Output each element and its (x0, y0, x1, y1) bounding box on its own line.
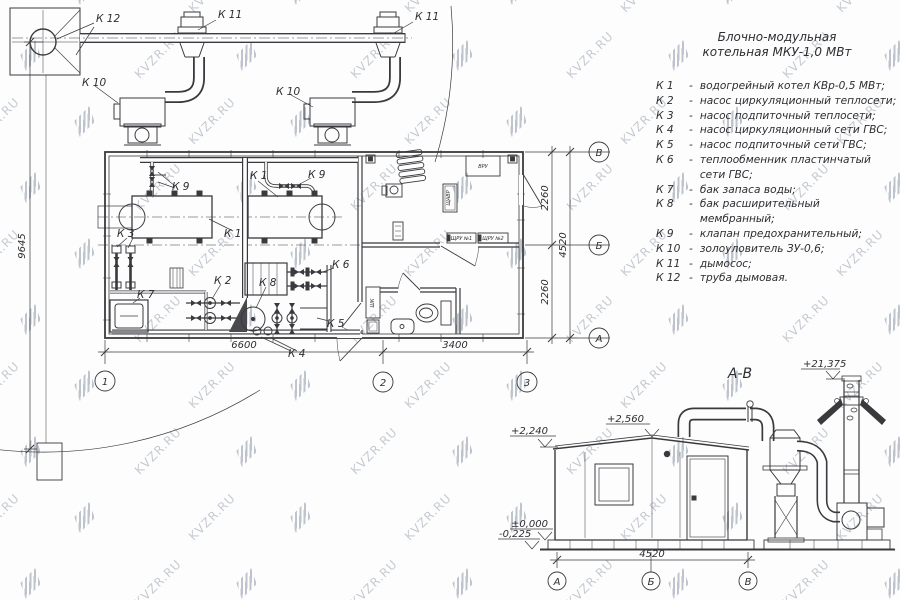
legend-item-separator: - (689, 257, 693, 272)
legend-item: К 1 - водогрейный котел КВр-0,5 МВт; (656, 79, 898, 94)
toilet (416, 301, 451, 325)
legend-item-key: К 7 (656, 183, 689, 198)
elevation-title: А-В (727, 366, 752, 382)
legend-item: К 3 - насос подпиточный теплосети; (656, 109, 898, 124)
legend-item-separator: - (689, 94, 693, 109)
elevation-view (498, 369, 895, 590)
legend-item: К 9 - клапан предохранительный; (656, 227, 898, 242)
drawing-title-line1: Блочно-модульная (656, 30, 898, 45)
sink (391, 319, 414, 334)
legend-item-key: К 6 (656, 153, 689, 183)
dim-9645: 9645 (17, 233, 28, 258)
legend-item-separator: - (689, 227, 693, 242)
axis-1: 1 (102, 377, 108, 388)
legend-item-description: насос подпиточный сети ГВС; (700, 138, 867, 153)
label-k12: К 12 (96, 13, 120, 25)
label-schru2: ЩРУ №2 (482, 236, 504, 242)
ash-collector-right (304, 98, 355, 145)
legend-item-separator: - (689, 138, 693, 153)
mark-0225: -0,225 (499, 529, 531, 540)
pumps-k2 (186, 298, 240, 324)
dim-6600: 6600 (231, 340, 256, 351)
legend-item-key: К 10 (656, 242, 689, 257)
label-shk: ШК (370, 298, 376, 307)
legend-item-description: бак расширительный мембранный; (700, 197, 898, 227)
label-k4: К 4 (288, 348, 305, 360)
mark-21375: +21,375 (803, 359, 846, 370)
axis-v-plan: В (596, 148, 603, 159)
legend-item: К 4 - насос циркуляционный сети ГВС; (656, 123, 898, 138)
axis-b-elevation: Б (648, 577, 655, 588)
window (595, 464, 633, 505)
mark-2240: +2,240 (511, 426, 548, 437)
legend-item-description: насос подпиточный теплосети; (700, 109, 876, 124)
tank-k8 (229, 297, 265, 332)
label-k11-right: К 11 (415, 11, 439, 23)
label-k6: К 6 (332, 259, 350, 271)
legend-item-description: бак запаса воды; (700, 183, 796, 198)
legend-item-key: К 11 (656, 257, 689, 272)
legend-item-description: теплообменник пластинчатый сети ГВС; (700, 153, 898, 183)
legend-item-description: труба дымовая. (700, 271, 788, 286)
legend-item-separator: - (689, 242, 693, 257)
drawing-sheet: KVZR.RUKVZR.RUKVZR.RUKVZR.RUKVZR.RUKVZR.… (0, 0, 900, 600)
legend-item-description: клапан предохранительный; (700, 227, 862, 242)
legend-item-key: К 9 (656, 227, 689, 242)
label-k5: К 5 (327, 318, 345, 330)
label-k3: К 3 (117, 228, 134, 240)
label-k7: К 7 (137, 289, 155, 301)
legend-item: К 11 - дымосос; (656, 257, 898, 272)
legend-item-description: насос циркуляционный сети ГВС; (700, 123, 888, 138)
tank-k7 (110, 300, 148, 332)
legend-item: К 8 - бак расширительный мембранный; (656, 197, 898, 227)
label-k8: К 8 (259, 277, 277, 289)
pumps-k3 (112, 246, 135, 290)
axis-b-plan: Б (596, 241, 603, 252)
label-k10-right: К 10 (276, 86, 300, 98)
axis-a-plan: А (595, 334, 603, 345)
legend-item: К 12 - труба дымовая. (656, 271, 898, 286)
drawing-title-line2: котельная МКУ-1,0 МВт (656, 45, 898, 60)
legend-item-description: насос циркуляционный теплосети; (700, 94, 896, 109)
dim-3400: 3400 (442, 340, 467, 351)
legend-item-key: К 5 (656, 138, 689, 153)
label-vru: ВРУ (478, 164, 488, 170)
label-k9-left: К 9 (172, 181, 190, 193)
label-k11-left: К 11 (218, 9, 242, 21)
axis-a-elevation: А (553, 577, 561, 588)
label-k10-left: К 10 (82, 77, 106, 89)
dim-2260-top: 2260 (540, 185, 551, 210)
label-k2: К 2 (214, 275, 232, 287)
label-k9-right: К 9 (308, 169, 326, 181)
fan-elevation (837, 503, 884, 540)
drawing-title: Блочно-модульная котельная МКУ-1,0 МВт (656, 30, 898, 60)
label-k1-bottom: К 1 (224, 228, 241, 240)
legend: Блочно-модульная котельная МКУ-1,0 МВт К… (656, 30, 898, 286)
guy-anchor-block (37, 443, 62, 480)
chimney-foundation (10, 8, 80, 75)
legend-item-description: водогрейный котел КВр-0,5 МВт; (700, 79, 885, 94)
axis-3: 3 (524, 378, 530, 389)
air-heater (396, 149, 426, 183)
legend-item-description: золоуловитель ЗУ-0,6; (700, 242, 825, 257)
legend-item-separator: - (689, 153, 693, 183)
legend-item-separator: - (689, 271, 693, 286)
dim-4520-elevation: 4520 (639, 549, 664, 560)
axis-2: 2 (380, 378, 386, 389)
legend-item-key: К 2 (656, 94, 689, 109)
mark-2560: +2,560 (607, 414, 644, 425)
legend-item-separator: - (689, 79, 693, 94)
legend-item-key: К 3 (656, 109, 689, 124)
legend-item: К 7 - бак запаса воды; (656, 183, 898, 198)
dim-2260-bottom: 2260 (540, 279, 551, 304)
smoke-exhauster-right (352, 12, 402, 97)
legend-item-key: К 4 (656, 123, 689, 138)
label-schru1: ЩРУ №1 (451, 236, 473, 242)
legend-item-separator: - (689, 123, 693, 138)
legend-item-key: К 1 (656, 79, 689, 94)
heat-exchanger-k6 (245, 263, 327, 295)
legend-item-key: К 12 (656, 271, 689, 286)
label-wall-panel: ЩАВР (446, 190, 452, 205)
axis-v-elevation: В (745, 577, 752, 588)
label-k1-top: К 1 (250, 170, 267, 182)
legend-item-description: дымосос; (700, 257, 752, 272)
legend-item-separator: - (689, 183, 693, 198)
cabinet-shk (366, 287, 380, 333)
legend-item: К 5 - насос подпиточный сети ГВС; (656, 138, 898, 153)
dim-4520-plan: 4520 (558, 232, 569, 257)
legend-item: К 2 - насос циркуляционный теплосети; (656, 94, 898, 109)
legend-item: К 6 - теплообменник пластинчатый сети ГВ… (656, 153, 898, 183)
legend-item-separator: - (689, 109, 693, 124)
legend-items: К 1 - водогрейный котел КВр-0,5 МВт; К 2… (656, 79, 898, 286)
ash-collector-left (114, 98, 165, 145)
legend-item-key: К 8 (656, 197, 689, 227)
smoke-exhauster-left (165, 12, 206, 97)
plan-boiler-hall (98, 158, 360, 351)
legend-item-separator: - (689, 197, 693, 227)
legend-item: К 10 - золоуловитель ЗУ-0,6; (656, 242, 898, 257)
